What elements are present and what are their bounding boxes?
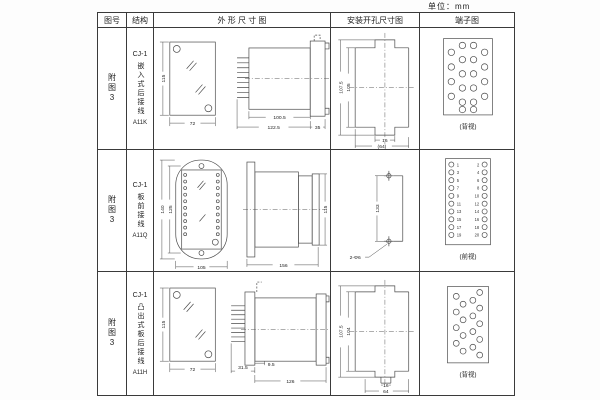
- clip-hook: [257, 282, 262, 292]
- mounting-hole-drawing-a11h: 107.5 104 16 64: [331, 274, 419, 394]
- hatch-mark: [198, 181, 206, 222]
- dim-label: 72: [190, 121, 196, 127]
- svg-text:4: 4: [477, 170, 480, 175]
- model-label: CJ-1: [133, 182, 148, 189]
- svg-text:3: 3: [457, 170, 460, 175]
- terminal-pins: [449, 162, 487, 238]
- type-code-label: A11Q: [133, 233, 148, 239]
- dim-label: 31.5: [238, 365, 248, 371]
- svg-text:9: 9: [457, 194, 460, 199]
- svg-text:10: 10: [475, 194, 480, 199]
- mounting-hole-drawing-a11q: 133 2-Φ6: [331, 150, 419, 271]
- view-label: (前视): [460, 251, 477, 260]
- dim-label: 105: [197, 265, 205, 271]
- svg-text:1: 1: [457, 162, 460, 167]
- outline-drawing-a11k: 115 72 100.5 122.5 35: [154, 28, 330, 149]
- outline-cell-row3: 115 72 31.5 9.5 126: [154, 272, 331, 395]
- mounting-hole-drawing-a11k: 107.5 105 16 (64): [331, 28, 419, 149]
- front-view: 115 72: [160, 288, 215, 373]
- header-cell-terminal: 端子图: [420, 13, 514, 28]
- header-cell-figure: 图号: [98, 13, 127, 28]
- svg-text:2: 2: [477, 162, 480, 167]
- hatch-mark: [184, 301, 206, 339]
- dim-label: 16: [382, 138, 388, 144]
- structure-label: 板前接线: [135, 193, 145, 229]
- hatch-mark: [187, 61, 197, 71]
- figure-label: 附图3: [107, 73, 118, 104]
- structure-cell-row2: CJ-1 板前接线 A11Q: [127, 150, 154, 272]
- svg-text:20: 20: [475, 233, 480, 238]
- terminal-cell-row2: 1 3 5 7 9 11 13 15 17 19 2 4 6 8 10 12 1: [420, 150, 514, 272]
- side-view: 31.5 9.5 126: [231, 282, 330, 385]
- dim-label: 105: [346, 83, 352, 91]
- front-view: 115 72: [160, 42, 215, 127]
- dim-label: 133: [375, 204, 381, 212]
- dim-label: 115: [161, 320, 167, 328]
- dim-label: 107.5: [338, 325, 344, 338]
- dim-label: (64): [378, 144, 387, 149]
- dim-label: 72: [190, 367, 196, 373]
- clip-hook: [314, 35, 320, 41]
- dim-label: 64: [383, 389, 389, 394]
- structure-label: 嵌入式后接线: [135, 62, 145, 116]
- view-label: (背视): [460, 369, 477, 378]
- outline-cell-row2: 140 125 105 156 115: [154, 150, 331, 272]
- outline-drawing-a11h: 115 72 31.5 9.5 126: [154, 274, 330, 394]
- header-cell-structure: 结构: [127, 13, 154, 28]
- mounting-cell-row3: 107.5 104 16 64: [331, 272, 420, 395]
- dim-label: 9.5: [268, 362, 275, 368]
- mounting-cell-row2: 133 2-Φ6: [331, 150, 420, 272]
- svg-text:19: 19: [457, 233, 462, 238]
- svg-text:14: 14: [475, 209, 480, 214]
- model-label: CJ-1: [133, 292, 148, 299]
- terminal-pins: [448, 42, 488, 113]
- figure-cell-row2: 附图3: [98, 150, 127, 272]
- dim-label: 35: [315, 125, 321, 131]
- structure-cell-row3: CJ-1 凸出式板后接线 A11H: [127, 272, 154, 395]
- hatch-mark: [196, 85, 206, 95]
- dim-label: 104: [346, 327, 352, 335]
- terminal-drawing-a11q: 1 3 5 7 9 11 13 15 17 19 2 4 6 8 10 12 1: [422, 150, 512, 271]
- svg-text:13: 13: [457, 209, 462, 214]
- structure-label: 凸出式板后接线: [135, 303, 145, 366]
- view-label: (背视): [460, 122, 477, 131]
- outline-drawing-a11q: 140 125 105 156 115: [154, 150, 330, 271]
- leader-line: [365, 244, 387, 257]
- type-code-label: A11H: [133, 370, 148, 376]
- dim-label: 126: [286, 378, 294, 384]
- terminal-drawing-a11h: (背视): [422, 274, 512, 394]
- dim-label: 115: [161, 74, 167, 82]
- figure-cell-row1: 附图3: [98, 28, 127, 150]
- figure-cell-row3: 附图3: [98, 272, 127, 395]
- header-cell-outline: 外 形 尺 寸 图: [154, 13, 331, 28]
- document-page: 单位：mm 图号 结构 外 形 尺 寸 图 安装开孔尺寸图 端子图 附图3 CJ…: [0, 0, 600, 400]
- dim-label: 16: [383, 383, 389, 389]
- bottom-tab: [381, 377, 391, 383]
- terminal-drawing-a11k: (背视): [422, 28, 512, 149]
- svg-text:12: 12: [475, 201, 480, 206]
- pin-comb: [231, 305, 245, 341]
- structure-cell-row1: CJ-1 嵌入式后接线 A11K: [127, 28, 154, 150]
- type-code-label: A11K: [133, 120, 147, 126]
- svg-text:15: 15: [457, 217, 462, 222]
- front-view: 140 125 105: [160, 160, 227, 271]
- unit-label: 单位：mm: [428, 1, 470, 12]
- side-view: 100.5 122.5 35: [237, 35, 330, 131]
- dim-label: 2-Φ6: [350, 255, 361, 261]
- outline-cell-row1: 115 72 100.5 122.5 35: [154, 28, 331, 150]
- side-view: 156 115: [243, 162, 329, 269]
- dim-label: 100.5: [273, 115, 286, 121]
- svg-text:7: 7: [457, 186, 460, 191]
- header-cell-mounting: 安装开孔尺寸图: [331, 13, 420, 28]
- dimension-table: 图号 结构 外 形 尺 寸 图 安装开孔尺寸图 端子图 附图3 CJ-1 嵌入式…: [97, 12, 515, 396]
- mounting-cell-row1: 107.5 105 16 (64): [331, 28, 420, 150]
- svg-text:11: 11: [457, 201, 462, 206]
- pin-comb: [237, 58, 249, 98]
- terminal-numbers: 1 3 5 7 9 11 13 15 17 19 2 4 6 8 10 12 1: [457, 162, 480, 237]
- svg-text:18: 18: [475, 225, 480, 230]
- terminal-cell-row1: (背视): [420, 28, 514, 150]
- svg-text:16: 16: [475, 217, 480, 222]
- dim-label: 156: [279, 263, 287, 269]
- edge-line: [394, 176, 403, 241]
- terminal-pins: [453, 289, 482, 357]
- terminal-cell-row3: (背视): [420, 272, 514, 395]
- svg-text:5: 5: [457, 178, 460, 183]
- svg-text:8: 8: [477, 186, 480, 191]
- figure-label: 附图3: [107, 318, 118, 349]
- dim-label: 140: [160, 205, 166, 213]
- dim-label: 115: [323, 205, 329, 213]
- model-label: CJ-1: [133, 51, 148, 58]
- svg-text:17: 17: [457, 225, 462, 230]
- dim-label: 122.5: [267, 125, 280, 131]
- svg-text:6: 6: [477, 178, 480, 183]
- dim-label: 125: [168, 205, 174, 213]
- dim-label: 107.5: [338, 81, 344, 94]
- figure-label: 附图3: [107, 195, 118, 226]
